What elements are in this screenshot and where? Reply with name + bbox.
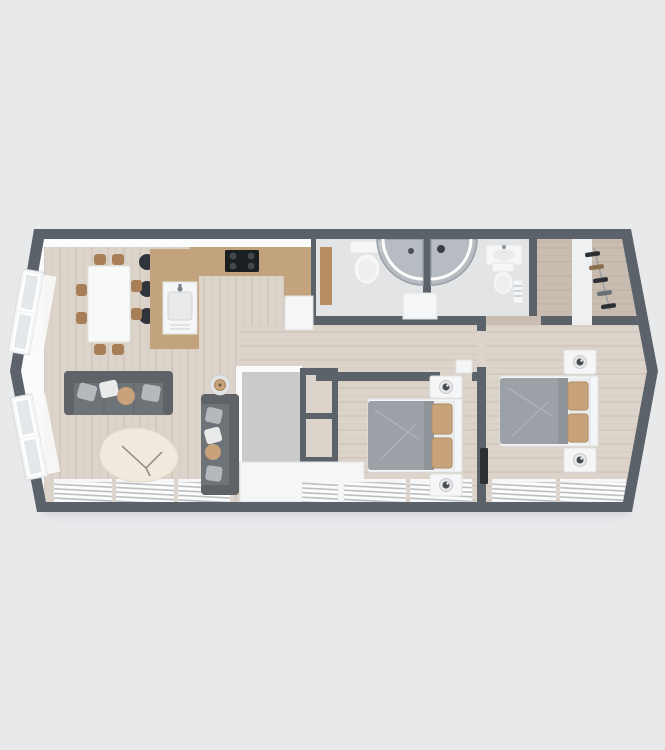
double-bed (500, 376, 598, 446)
toilet (492, 263, 514, 295)
washbasin (486, 245, 522, 265)
sink-unit (163, 282, 197, 334)
doorway-dressing (486, 316, 541, 325)
interior (10, 229, 658, 512)
bedside-cabinet (564, 448, 596, 472)
headboard (590, 376, 598, 446)
doorway-master (477, 331, 486, 367)
fridge-unit (285, 296, 313, 330)
floorplan-svg (0, 0, 665, 750)
bathroom-storage-unit (403, 293, 437, 319)
table-lamp (577, 359, 584, 366)
headboard (454, 399, 462, 472)
bedside-cabinet (564, 350, 596, 374)
open-shelf-unit (300, 368, 338, 465)
table-lamp (443, 384, 450, 391)
wall-tv (480, 448, 488, 484)
shower-head (437, 245, 445, 253)
two-seat-sofa (201, 394, 239, 495)
hall-niche (456, 360, 472, 373)
double-bed (368, 399, 462, 472)
linen-nook (236, 366, 302, 462)
three-seat-sofa (64, 371, 173, 415)
table-lamp (577, 457, 584, 464)
dining-table (88, 266, 130, 342)
floorplan-image (0, 0, 665, 750)
side-table-with-lamp (210, 375, 230, 395)
pillow (568, 414, 588, 442)
timber-vanity-shelf (320, 247, 332, 305)
kitchen-counter-return (284, 247, 311, 298)
kitchen-backsplash (44, 239, 311, 247)
table-lamp (443, 482, 450, 489)
pillow (432, 438, 452, 468)
pillow (568, 382, 588, 410)
pillow (432, 404, 452, 434)
bedside-cabinet (430, 376, 462, 398)
faucet (178, 287, 183, 292)
hob (225, 250, 259, 272)
towel-radiator (513, 280, 523, 303)
shower-head (408, 248, 414, 254)
wardrobe-panel (572, 239, 592, 325)
bedside-cabinet (430, 474, 462, 496)
